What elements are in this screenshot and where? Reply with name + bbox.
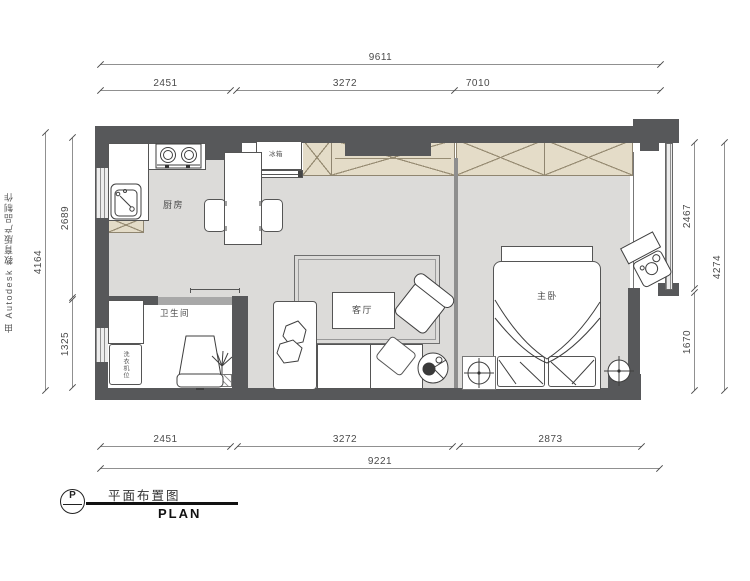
dim-bottom-seg3: 2873 bbox=[459, 446, 642, 447]
bedroom-label: 主卧 bbox=[537, 292, 558, 301]
living-room-label: 客厅 bbox=[352, 306, 373, 315]
floor-outlet-icon-left bbox=[464, 358, 494, 388]
toilet-icon bbox=[177, 336, 223, 389]
side-table-icon bbox=[418, 353, 448, 383]
dim-right-seg1: 2467 bbox=[694, 143, 695, 288]
armchair-icon bbox=[390, 271, 456, 337]
floor-outlet-icon-right bbox=[604, 356, 634, 386]
bathroom-label: 卫生间 bbox=[160, 309, 190, 318]
plan-subtitle: PLAN bbox=[158, 506, 201, 521]
dim-left-seg2: 1325 bbox=[72, 300, 73, 387]
plan-marker-bubble: P bbox=[60, 489, 85, 514]
kitchen-label: 厨房 bbox=[163, 201, 184, 210]
dim-right-overall: 4274 bbox=[724, 143, 725, 390]
dim-bottom-seg2: 3272 bbox=[237, 446, 453, 447]
kitchen-sink-icon bbox=[111, 184, 141, 219]
autodesk-watermark: 由 Autodesk 教育版产品制作 bbox=[2, 148, 15, 333]
dim-left-overall: 4164 bbox=[45, 133, 46, 390]
dim-bottom-overall: 9221 bbox=[100, 468, 660, 469]
dim-top-seg2: 3272 7010 bbox=[236, 90, 661, 91]
stove-icon bbox=[156, 144, 201, 168]
fridge-label: 冰箱 bbox=[269, 152, 283, 159]
dim-top-seg1: 2451 bbox=[100, 90, 231, 91]
dim-left-seg1: 2689 bbox=[72, 138, 73, 297]
dim-top-overall: 9611 bbox=[100, 64, 661, 65]
dim-right-seg2: 1670 bbox=[694, 293, 695, 390]
plan-marker-letter: P bbox=[69, 490, 76, 501]
dining-chair-marks bbox=[226, 201, 260, 231]
bed-blanket-lines bbox=[495, 300, 600, 385]
plant-icon bbox=[277, 321, 306, 363]
bay-desk-chair-icon bbox=[621, 232, 674, 290]
floor-plan-canvas: 洗衣机位 bbox=[0, 0, 750, 581]
dim-bottom-seg1: 2451 bbox=[100, 446, 231, 447]
plan-title: 平面布置图 bbox=[108, 485, 181, 504]
